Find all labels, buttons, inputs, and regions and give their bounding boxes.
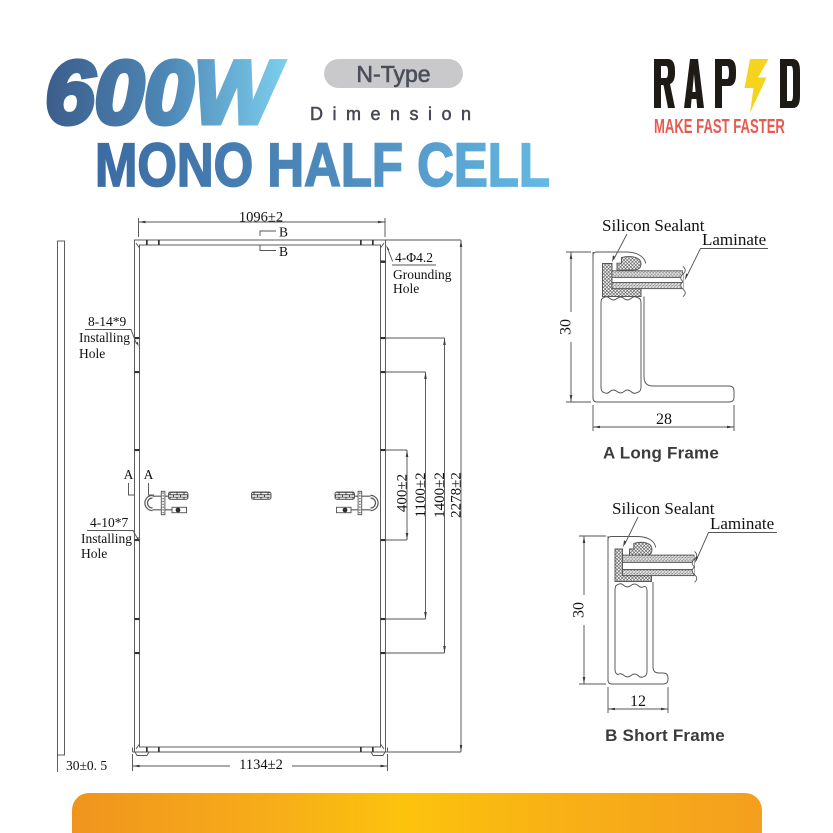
svg-text:Installing: Installing [79,330,130,345]
svg-text:1100±2: 1100±2 [413,472,429,517]
svg-text:8-14*9: 8-14*9 [88,314,126,329]
svg-text:Silicon Sealant: Silicon Sealant [612,499,715,518]
svg-text:Laminate: Laminate [710,514,774,533]
svg-text:400±2: 400±2 [395,474,411,512]
svg-text:4-Φ4.2: 4-Φ4.2 [395,250,433,265]
svg-text:Hole: Hole [79,346,105,361]
svg-text:B Short Frame: B Short Frame [605,726,725,745]
svg-text:1096±2: 1096±2 [239,210,283,226]
svg-text:30: 30 [571,602,588,618]
svg-text:4-10*7: 4-10*7 [90,515,128,530]
svg-text:Grounding: Grounding [393,267,452,282]
svg-text:A Long Frame: A Long Frame [603,444,719,463]
svg-text:1134±2: 1134±2 [239,757,283,773]
svg-text:30±0. 5: 30±0. 5 [66,758,107,773]
svg-text:30: 30 [558,319,575,335]
svg-text:Silicon Sealant: Silicon Sealant [602,216,705,235]
svg-text:Laminate: Laminate [702,230,766,249]
svg-text:Hole: Hole [81,546,107,561]
svg-text:A: A [144,467,154,482]
svg-text:1400±2: 1400±2 [432,472,448,518]
svg-text:12: 12 [630,693,646,710]
svg-text:28: 28 [656,411,672,428]
svg-text:Installing: Installing [81,531,132,546]
svg-text:2278±2: 2278±2 [449,472,465,518]
svg-text:Hole: Hole [393,281,419,296]
svg-text:B: B [279,225,288,240]
svg-text:B: B [279,244,288,259]
svg-text:A: A [124,467,134,482]
